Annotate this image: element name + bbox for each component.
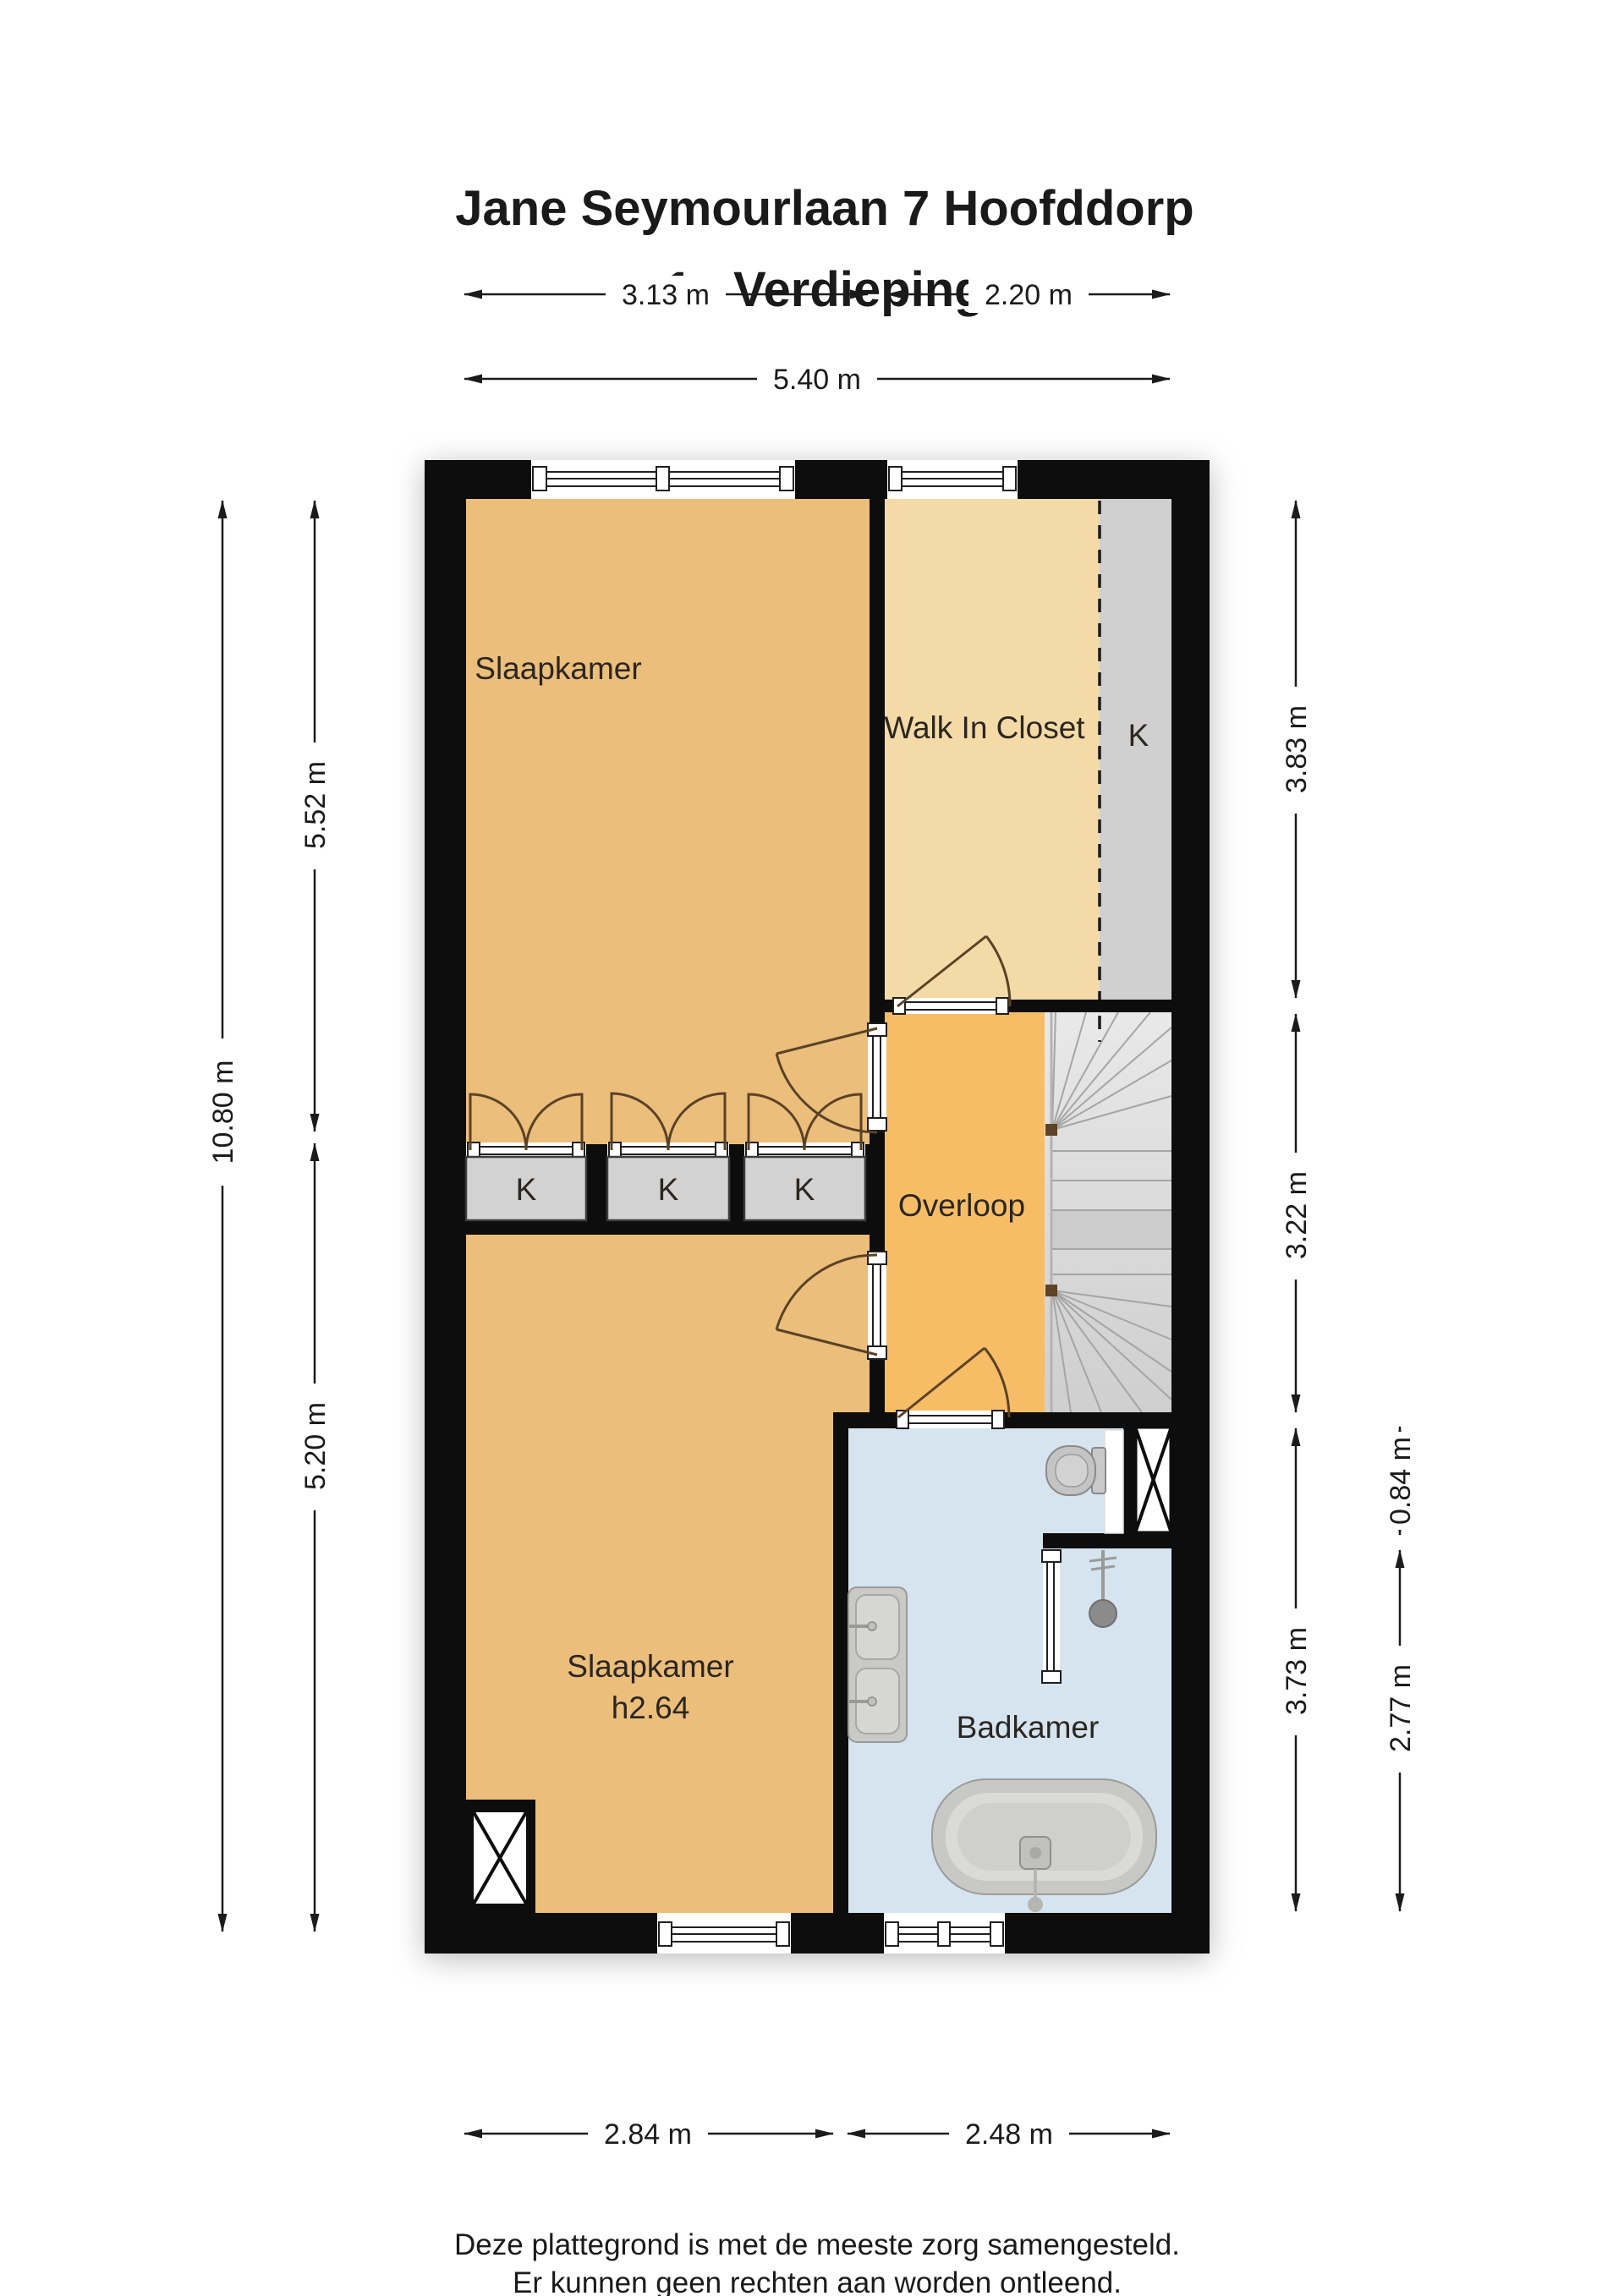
svg-text:5.20 m: 5.20 m (299, 1402, 332, 1490)
label-slaapkamer-2: Slaapkamer (567, 1649, 733, 1684)
dim-right-lower: 3.73 m (1276, 1428, 1315, 1911)
stair-newel-post-upper (1045, 1124, 1057, 1136)
ventilation-shaft-slaapkamer2 (464, 1800, 535, 1913)
dim-left-upper: 5.52 m (295, 501, 334, 1132)
label-kast-2: K (658, 1172, 679, 1207)
window-badkamer-bottom (884, 1913, 1005, 1954)
svg-text:3.22 m: 3.22 m (1281, 1171, 1313, 1259)
svg-text:5.52 m: 5.52 m (299, 761, 332, 849)
svg-text:2.77 m: 2.77 m (1385, 1664, 1417, 1752)
svg-text:2.48 m: 2.48 m (965, 2118, 1053, 2151)
label-walk-in-closet: Walk In Closet (884, 710, 1085, 745)
double-sink (848, 1587, 907, 1742)
door-threshold-walk-in-closet (892, 998, 1009, 1014)
svg-text:0.84 m: 0.84 m (1385, 1437, 1417, 1525)
dim-right-upper: 3.83 m (1276, 501, 1315, 998)
disclaimer-line1: Deze plattegrond is met de meeste zorg s… (454, 2228, 1180, 2261)
disclaimer-line2: Er kunnen geen rechten aan worden ontlee… (513, 2266, 1122, 2296)
dim-left-total: 10.80 m (203, 501, 242, 1932)
dim-bottom-left: 2.84 m (464, 2115, 833, 2152)
svg-text:2.84 m: 2.84 m (604, 2118, 692, 2151)
shower-head-icon (1089, 1600, 1116, 1627)
floor-plan: Slaapkamer Walk In Closet K Overloop K K… (425, 460, 1210, 1954)
dim-left-lower: 5.20 m (295, 1143, 334, 1932)
stair-newel-post-lower (1045, 1285, 1057, 1296)
dim-right-middle: 3.22 m (1276, 1014, 1315, 1412)
window-slaapkamer2-bottom (657, 1913, 791, 1954)
svg-text:2.20 m: 2.20 m (985, 279, 1073, 311)
dim-top-total: 5.40 m (464, 360, 1170, 397)
room-slaapkamer-1-floor (466, 499, 870, 1146)
label-kast-1: K (516, 1172, 537, 1207)
door-threshold-badkamer (896, 1411, 1005, 1428)
label-kast-3: K (794, 1172, 815, 1207)
ventilation-shaft-badkamer (1135, 1427, 1171, 1533)
dim-bottom-right: 2.48 m (848, 2115, 1170, 2152)
label-badkamer: Badkamer (957, 1710, 1100, 1745)
svg-text:3.83 m: 3.83 m (1281, 705, 1313, 793)
window-slaapkamer1-top (531, 460, 795, 499)
label-slaapkamer-1: Slaapkamer (475, 651, 641, 686)
title-line1: Jane Seymourlaan 7 Hoofddorp (455, 181, 1193, 236)
svg-text:5.40 m: 5.40 m (773, 364, 861, 396)
svg-text:10.80 m: 10.80 m (207, 1060, 239, 1164)
door-threshold-slaapkamer1 (868, 1023, 886, 1131)
dim-right-inner-large: 2.77 m (1380, 1550, 1419, 1911)
label-slaapkamer-2-height: h2.64 (612, 1690, 690, 1725)
staircase (1045, 1012, 1171, 1412)
label-overloop: Overloop (898, 1188, 1025, 1223)
svg-text:3.73 m: 3.73 m (1281, 1627, 1313, 1715)
window-walk-in-closet-top (887, 460, 1018, 499)
door-threshold-slaapkamer2 (868, 1252, 886, 1359)
svg-text:3.13 m: 3.13 m (622, 279, 710, 311)
dim-right-inner-small: 0.84 m (1380, 1427, 1419, 1535)
label-walk-in-closet-k: K (1128, 718, 1149, 753)
room-walk-in-closet-floor (885, 499, 1100, 1000)
disclaimer: Deze plattegrond is met de meeste zorg s… (454, 2228, 1180, 2296)
floorplan-page: Jane Seymourlaan 7 Hoofddorp 1e Verdiepi… (0, 0, 1624, 2296)
